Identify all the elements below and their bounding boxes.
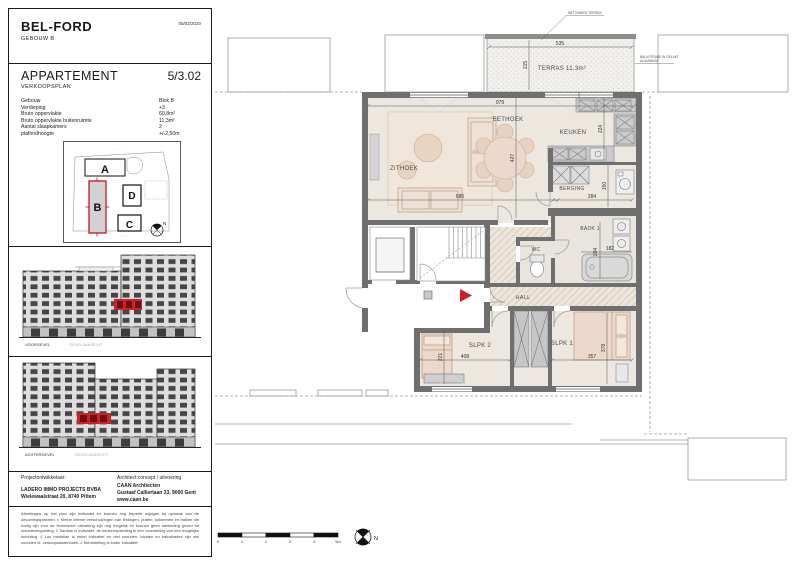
elevation-rear: ACHTERGEVEL GEVELAANZICHT bbox=[17, 359, 203, 467]
common-core bbox=[368, 227, 485, 328]
label-badk: BADK 1 bbox=[580, 226, 600, 232]
north-compass-icon: N bbox=[355, 529, 378, 545]
dim-badk-width: 182 bbox=[606, 246, 615, 252]
architect-label: Architect concept / uitvoering bbox=[117, 475, 181, 481]
scale-0: 0 bbox=[217, 540, 219, 544]
label-wc: WC bbox=[532, 247, 541, 253]
elevation-front: VOORGEVEL GEVELAANZICHT bbox=[17, 249, 203, 353]
developer-label: Projectontwikkelaar: bbox=[21, 475, 66, 481]
architect-name: CAAN Architecten bbox=[117, 483, 160, 489]
dim-badk-depth: 204 bbox=[593, 248, 599, 257]
sheet-title: APPARTEMENT bbox=[21, 69, 118, 83]
label-zithoek: ZITHOEK bbox=[390, 166, 418, 172]
street-name-bottom: ··········· bbox=[118, 235, 128, 238]
sideboard bbox=[370, 134, 379, 180]
block-b-label: B bbox=[94, 202, 102, 214]
block-a-label: A bbox=[101, 164, 109, 176]
scale-labels: 0 1 2 3 4 5m bbox=[217, 540, 341, 544]
block-d-label: D bbox=[128, 191, 135, 202]
architect-address: Gustaaf Callierlaan 33, 9000 Gent bbox=[117, 490, 196, 496]
plan-sheet: 979 685 427 535 215 224 284 150 204 182 … bbox=[0, 0, 800, 569]
project-name: BEL-FORD bbox=[21, 19, 92, 34]
spec-value: Blok B bbox=[159, 98, 174, 104]
scale-4: 4 bbox=[313, 540, 315, 544]
spec-row: GebouwBlok B bbox=[21, 98, 201, 104]
section-divider bbox=[9, 356, 211, 357]
label-hall: HALL bbox=[516, 295, 531, 301]
developer-name: LADERO IMMO PROJECTS BVBA bbox=[21, 487, 101, 493]
scale-5: 5m bbox=[335, 540, 340, 544]
scale-2: 2 bbox=[265, 540, 267, 544]
dim-slpk1-width: 357 bbox=[588, 354, 597, 360]
site-outbuilding bbox=[127, 157, 143, 173]
spec-value: 60,8m² bbox=[159, 111, 175, 117]
dim-total-width: 979 bbox=[496, 100, 505, 106]
street-name-top: ········· bbox=[115, 148, 123, 151]
disclaimer-text: Afmetingen op het plan zijn indicatief e… bbox=[21, 511, 199, 546]
section-divider bbox=[9, 471, 211, 472]
elevator-car bbox=[376, 238, 404, 272]
spec-label: Bruto oppervlakte bbox=[21, 111, 62, 117]
scale-1: 1 bbox=[241, 540, 243, 544]
spec-label: plafondhoogte bbox=[21, 131, 54, 137]
dim-slpk1-depth: 378 bbox=[601, 344, 607, 353]
section-divider bbox=[9, 506, 211, 507]
scale-3: 3 bbox=[289, 540, 291, 544]
elevation-caption: VOORGEVEL bbox=[25, 342, 51, 347]
building-name: GEBOUW B bbox=[21, 36, 54, 42]
dim-slpk2-width: 408 bbox=[461, 354, 470, 360]
sink bbox=[590, 148, 606, 160]
architect-website: www.caan.be bbox=[117, 497, 149, 503]
elevation-caption-note: GEVELAANZICHT bbox=[75, 452, 109, 457]
bench bbox=[616, 364, 628, 382]
spec-label: Bruto oppervlakte buitenruimte bbox=[21, 118, 92, 124]
sheet-subtitle: VERKOOPSPLAN bbox=[21, 84, 71, 90]
label-eethoek: EETHOEK bbox=[493, 117, 524, 123]
north-label: N bbox=[374, 536, 378, 542]
label-slpk2: SLPK 2 bbox=[469, 343, 492, 349]
facade-right-block bbox=[157, 369, 195, 447]
spec-row: Bruto oppervlakte buitenruimte11,3m² bbox=[21, 118, 201, 124]
dining-table bbox=[484, 137, 526, 179]
site-north-label: N bbox=[163, 221, 166, 226]
spec-label: Aantal slaapkamers bbox=[21, 124, 67, 130]
coffee-table bbox=[414, 134, 442, 162]
section-divider bbox=[9, 63, 211, 64]
elevation-caption-note: GEVELAANZICHT bbox=[69, 342, 103, 347]
street-name-left: ········· bbox=[68, 195, 71, 203]
dim-keuken-depth: 224 bbox=[598, 125, 604, 134]
spec-value: 11,3m² bbox=[159, 118, 175, 124]
section-divider bbox=[9, 246, 211, 247]
concrete-terrace-edge bbox=[485, 34, 636, 39]
block-c-label: C bbox=[126, 220, 133, 231]
washbasin bbox=[613, 219, 630, 234]
dim-berging-width: 284 bbox=[588, 194, 597, 200]
document-date: 05/02/2020 bbox=[178, 21, 201, 26]
service-shafts bbox=[514, 311, 548, 367]
zithoek-furniture bbox=[370, 112, 496, 212]
dim-berging-depth: 150 bbox=[602, 182, 608, 191]
column bbox=[424, 291, 432, 299]
dim-zithoek-width: 685 bbox=[456, 194, 465, 200]
scale-bar bbox=[218, 533, 338, 537]
toilet bbox=[531, 261, 544, 277]
facade-left-tower bbox=[23, 363, 95, 447]
label-slpk1: SLPK 1 bbox=[551, 341, 574, 347]
dim-slpk2-depth: 221 bbox=[438, 353, 444, 362]
washing-machine bbox=[616, 170, 634, 194]
dim-living-depth: 427 bbox=[510, 154, 516, 163]
spec-row: Verdieping+3 bbox=[21, 105, 201, 111]
label-terras: TERRAS 11,3m² bbox=[538, 66, 586, 72]
spec-label: Verdieping bbox=[21, 105, 46, 111]
site-plan: ········· ········· ··········· A B D C … bbox=[63, 141, 181, 243]
facade-right-tower bbox=[121, 255, 195, 337]
spec-label: Gebouw bbox=[21, 98, 40, 104]
label-keuken: KEUKEN bbox=[560, 130, 586, 136]
developer-address: Wielewaalstraat 20, 8740 Pittem bbox=[21, 494, 96, 500]
spec-value: +/-2,50m bbox=[159, 131, 180, 137]
spec-row: Aantal slaapkamers2 bbox=[21, 124, 201, 130]
dim-terras-width: 535 bbox=[556, 41, 565, 47]
spec-value: +3 bbox=[159, 105, 165, 111]
title-block: BEL-FORD GEBOUW B 05/02/2020 APPARTEMENT… bbox=[8, 8, 212, 557]
spec-value: 2 bbox=[159, 124, 162, 130]
washbasin bbox=[613, 236, 630, 251]
elevation-caption: ACHTERGEVEL bbox=[25, 452, 56, 457]
spec-row: Bruto oppervlakte60,8m² bbox=[21, 111, 201, 117]
dim-terras-depth: 215 bbox=[523, 61, 529, 70]
lobby bbox=[368, 284, 484, 328]
note-concrete-terrace: BETONNEN TERRAS bbox=[568, 11, 602, 15]
unit-number: 5/3.02 bbox=[168, 69, 201, 83]
label-berging: BERGING bbox=[559, 186, 584, 192]
note-balustrade-line2: ALUMINIUM bbox=[640, 59, 658, 63]
spec-row: plafondhoogte+/-2,50m bbox=[21, 131, 201, 137]
